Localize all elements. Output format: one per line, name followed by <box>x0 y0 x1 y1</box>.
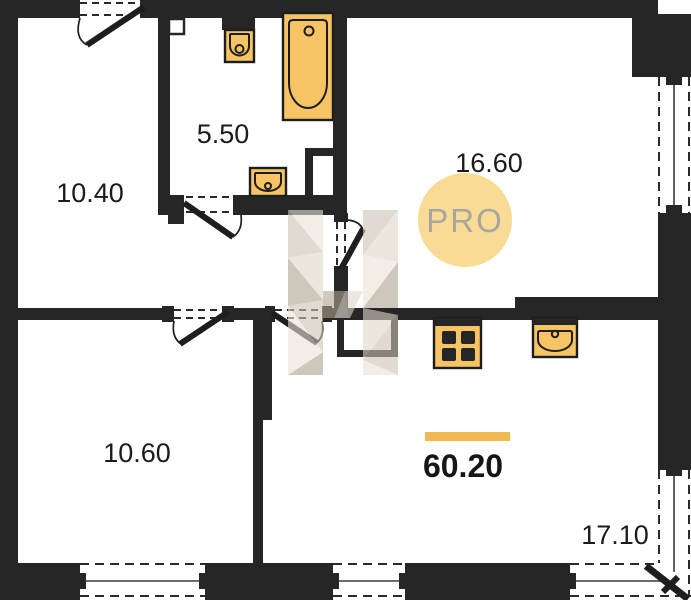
stove-backsplash <box>434 318 481 326</box>
floorplan-canvas: PRO 10.40 5.50 16.60 10.60 17.10 60.20 <box>0 0 691 600</box>
area-label-entry-room: 10.40 <box>56 178 124 208</box>
outer-wall-bottom-mid-block <box>205 563 333 600</box>
stove-burner <box>442 348 456 361</box>
window-nub <box>399 573 407 589</box>
kitchen-top-wall <box>515 297 658 320</box>
main-wall-right <box>332 308 515 320</box>
window-nub <box>331 573 339 589</box>
entrance-post-left <box>70 0 80 18</box>
outer-wall-left <box>0 0 18 600</box>
total-area-label: 60.20 <box>423 448 503 484</box>
wall-entryroom-bathroom <box>158 18 170 215</box>
pro-badge: PRO <box>418 173 512 267</box>
wall-bedroom-kitchen-upper <box>253 310 272 420</box>
area-label-kitchen-living: 17.10 <box>581 520 649 550</box>
toilet-icon <box>225 30 254 62</box>
window-nub <box>666 468 682 476</box>
wash-basin-icon <box>250 168 286 196</box>
window-nub <box>199 573 207 589</box>
wall-bathroom-living <box>333 0 347 213</box>
stove-burner <box>461 331 475 344</box>
window-nub <box>666 77 682 85</box>
window-nub <box>666 205 682 213</box>
floorplan-drawing: PRO 10.40 5.50 16.60 10.60 17.10 60.20 <box>0 0 691 600</box>
bathtub-body <box>283 13 333 120</box>
window-nub <box>568 573 576 589</box>
main-wall-left <box>18 308 164 320</box>
window-nub <box>78 573 86 589</box>
hall-door-top-post <box>334 213 348 222</box>
wall-toilet-tank <box>222 0 255 30</box>
kitchen-sink-icon <box>533 318 577 357</box>
outer-wall-bottom-right-block <box>405 563 570 600</box>
total-area-accent-bar <box>425 432 510 441</box>
area-label-bedroom: 10.60 <box>103 438 171 468</box>
outer-wall-right-block <box>658 213 691 470</box>
stove-burner <box>442 331 456 344</box>
stove-icon <box>434 318 481 368</box>
outer-wall-bottom-left-block <box>0 563 80 600</box>
outer-wall-top-right-block <box>632 14 691 77</box>
pro-badge-text: PRO <box>426 202 504 239</box>
bathroom-door-hinge-post <box>168 198 184 224</box>
bathroom-niche-left <box>305 148 313 195</box>
area-label-living-room: 16.60 <box>455 148 523 178</box>
sink-backsplash <box>533 318 577 325</box>
bathtub-icon <box>283 13 333 120</box>
outer-wall-top-left <box>0 0 76 18</box>
wall-bedroom-kitchen-lower <box>253 420 263 565</box>
pilaster <box>169 19 184 34</box>
stove-burner <box>461 348 475 361</box>
door1-post-left <box>162 306 174 322</box>
area-label-bathroom: 5.50 <box>197 119 250 149</box>
